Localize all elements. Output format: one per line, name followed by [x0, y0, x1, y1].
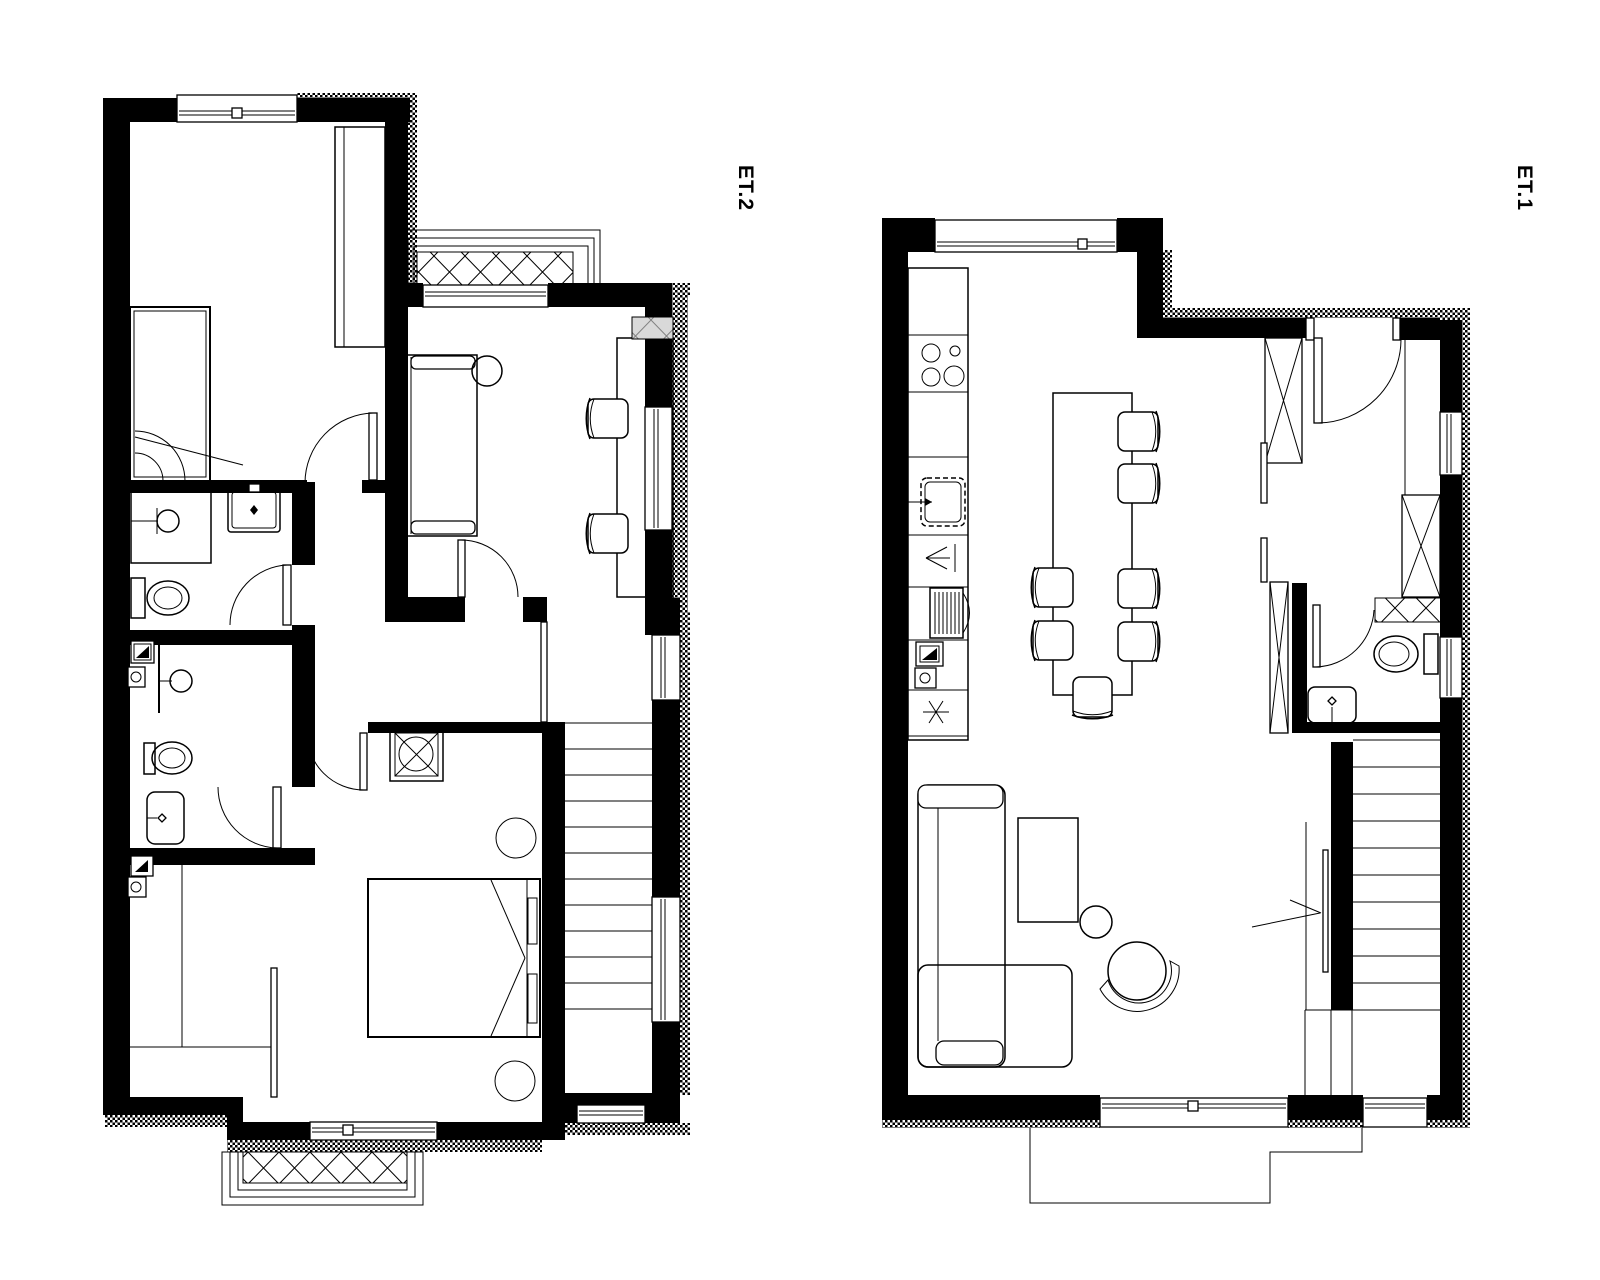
window-study-north [423, 285, 548, 307]
electrical-panel-kitchen [916, 642, 943, 666]
dining-chair [1118, 411, 1160, 452]
entry-wardrobe-left [1265, 338, 1302, 463]
window-stair-south [1363, 1098, 1427, 1127]
dining-chair [1031, 567, 1073, 608]
window-kitchen-north [935, 220, 1117, 252]
nightstand [495, 1061, 535, 1101]
washbasin-wc [1308, 687, 1356, 723]
closet-partition [271, 968, 277, 1097]
dining-chair [1031, 620, 1073, 661]
cooktop [922, 344, 964, 386]
single-bed [130, 307, 243, 481]
stair-rail [541, 622, 547, 722]
dining-chair [1118, 568, 1160, 609]
corner-sofa [918, 785, 1072, 1067]
floor-label-et2: ET.2 [733, 165, 757, 211]
window-study-east [645, 407, 672, 530]
wc [1308, 598, 1452, 723]
nightstand [496, 818, 536, 858]
living-room [918, 785, 1179, 1067]
stair-handrail [1323, 850, 1328, 972]
floor-plan-et1 [882, 218, 1470, 1203]
terrace-outline [1030, 1128, 1362, 1203]
door-bedroom [305, 413, 377, 483]
electrical-panel [131, 641, 154, 663]
entry-wardrobe-right [1402, 495, 1440, 597]
dining-chair [1118, 463, 1160, 504]
dining-chair [1072, 677, 1113, 719]
entrance-door [1306, 318, 1401, 423]
kitchen-counter [908, 268, 970, 740]
grey-duct [632, 317, 673, 339]
balcony-south [222, 1152, 423, 1205]
door-study [458, 540, 518, 597]
dining-area [1031, 393, 1160, 719]
meter-device [128, 667, 145, 687]
door-bathroom-upper [230, 565, 291, 625]
shower-lower [159, 645, 192, 713]
coffee-table [1018, 818, 1078, 922]
shower-upper [131, 492, 211, 563]
window-stairbay-south [577, 1105, 645, 1123]
desk-chair [586, 398, 628, 439]
stair-direction-arrow [1252, 900, 1321, 927]
chimney-duct [390, 728, 443, 781]
dining-chair [1118, 621, 1160, 662]
door-master [307, 733, 367, 790]
window-living-south [1100, 1098, 1288, 1127]
desk-chair [586, 513, 628, 554]
fridge [930, 588, 970, 638]
toilet-wc [1374, 634, 1438, 674]
built-in-closet [130, 865, 277, 1097]
electrical-panel-2 [131, 856, 153, 876]
entry-wardrobe-lower [1270, 582, 1288, 733]
window-entry-east [1440, 412, 1462, 475]
balcony-north [402, 230, 600, 285]
dishwasher-icon [926, 544, 955, 572]
armchair [1100, 942, 1179, 1011]
freezer-icon [923, 701, 949, 723]
toilet-lower [144, 742, 192, 774]
walls-et1 [882, 218, 1462, 1120]
master-bedroom [128, 728, 540, 1101]
bathroom-upper [131, 484, 291, 625]
double-bed [368, 879, 540, 1037]
washbasin-lower [147, 792, 184, 844]
window-wc-east [1440, 637, 1462, 698]
door-wc [1313, 605, 1374, 667]
walls-et2 [103, 98, 680, 1140]
window-bedroom-north [177, 95, 297, 122]
window-stair-east-2 [652, 897, 680, 1022]
floor-plan-sheet: ET.2 ET.1 [0, 0, 1600, 1280]
study-sofa [398, 355, 477, 536]
meter-device-kitchen [915, 668, 936, 688]
round-side-table-living [1080, 906, 1112, 938]
kitchen-sink [908, 478, 965, 526]
meter-device-2 [128, 877, 146, 897]
door-bathroom-lower [218, 787, 281, 848]
wardrobe [335, 127, 385, 347]
window-stair-east-1 [652, 635, 680, 700]
floor-plan-et2 [103, 93, 690, 1205]
insulation-hatch-et1 [882, 250, 1470, 1128]
toilet-upper [131, 578, 189, 618]
window-master-bay [310, 1122, 437, 1140]
floor-label-et1: ET.1 [1512, 165, 1536, 211]
duct-hatch [1375, 598, 1452, 622]
floor-plan-drawing [0, 0, 1600, 1280]
bathroom-lower [128, 641, 281, 848]
